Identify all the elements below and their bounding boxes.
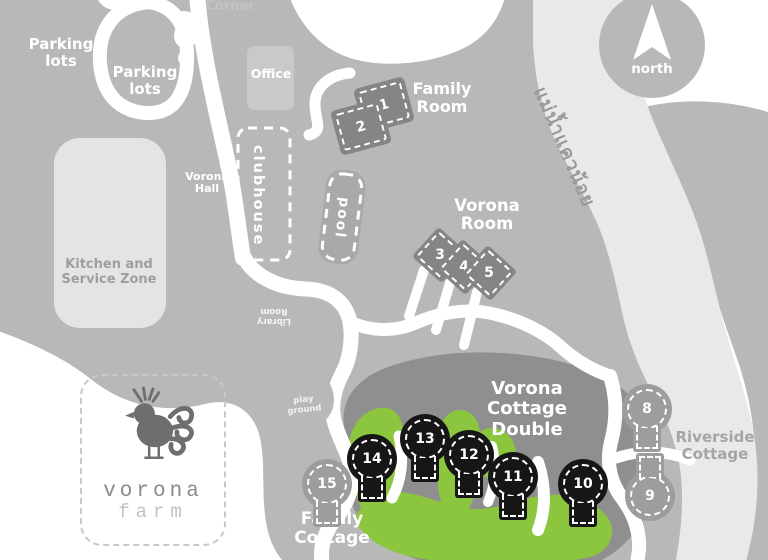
cottage-8-number: 8: [622, 384, 672, 434]
cottage-5: 5: [461, 245, 517, 301]
cottage-11: 11: [484, 452, 542, 520]
vorona-hall-label: Vorona Hall: [180, 171, 234, 196]
cottage-10-number: 10: [558, 459, 608, 509]
parking-lots-label-2: Parking lots: [108, 64, 182, 98]
vorona-room-label: Vorona Room: [452, 197, 522, 234]
logo-subname: farm: [82, 501, 224, 523]
cottage-11-number: 11: [488, 452, 538, 502]
kitchen-zone-label: Kitchen and Service Zone: [58, 258, 160, 287]
vorona-farm-logo: vorona farm: [80, 374, 226, 546]
library-room-label: Library Room: [250, 306, 298, 325]
corner-label: Corner: [190, 0, 270, 15]
kitchen-zone-block: [54, 138, 166, 328]
office-label: Office: [246, 67, 296, 81]
family-room-label: Family Room: [408, 80, 476, 116]
north-label: north: [622, 62, 682, 77]
riverside-cottage-label: Riverside Cottage: [664, 429, 766, 463]
cottage-9-number: 9: [625, 471, 675, 521]
resort-map: Corner Parking lots Parking lots Office …: [0, 0, 768, 560]
cottage-9: 9: [621, 453, 679, 521]
cottage-10: 10: [554, 459, 612, 527]
rooster-icon: [105, 386, 201, 474]
clubhouse-label: clubhouse: [250, 140, 266, 252]
parking-lots-label-1: Parking lots: [24, 36, 98, 70]
cottage-5-number: 5: [469, 253, 509, 293]
cottage-8: 8: [618, 384, 676, 452]
cottage-14: 14: [343, 434, 401, 502]
cottage-14-number: 14: [347, 434, 397, 484]
logo-name: vorona: [82, 480, 224, 503]
